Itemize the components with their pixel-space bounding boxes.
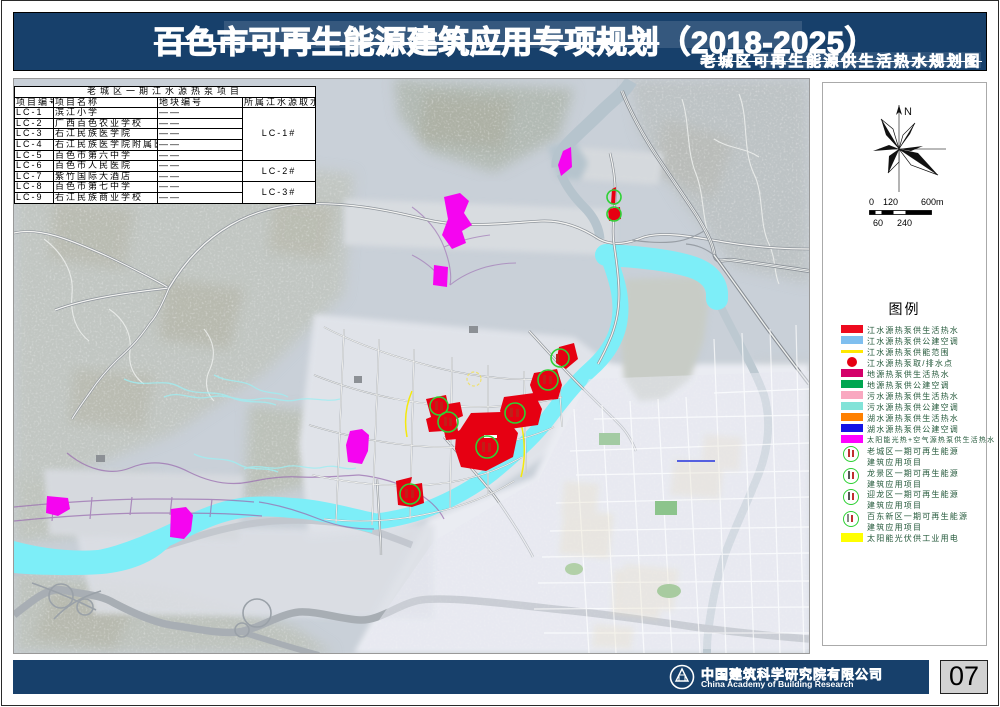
svg-text:N: N bbox=[904, 106, 912, 118]
